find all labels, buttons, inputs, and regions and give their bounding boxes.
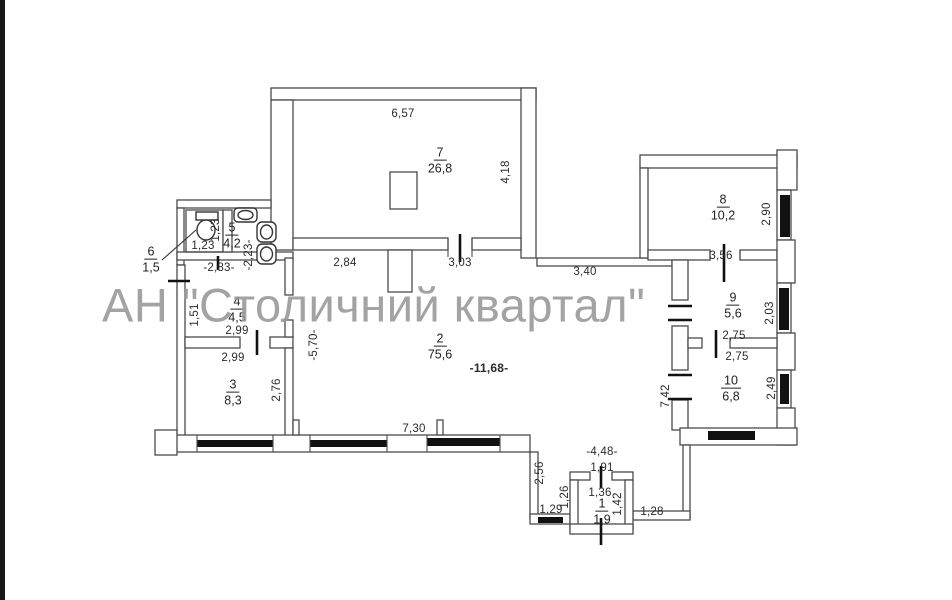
dim-7-42: 7,42 <box>660 384 672 407</box>
room-9-label: 9 5,6 <box>724 291 741 322</box>
room-3-number: 3 <box>227 378 240 393</box>
dim-1-29: 1,29 <box>539 504 562 516</box>
room-9-number: 9 <box>727 291 740 306</box>
dim-4-18: 4,18 <box>500 160 512 183</box>
room-7-area: 26,8 <box>428 161 452 176</box>
floor-plan-page: 7 26,8 8 10,2 2 75,6 4 4,5 3 8,3 5 4,2 6… <box>0 0 952 600</box>
room-8-label: 8 10,2 <box>711 193 735 224</box>
dim-2-84: 2,84 <box>333 257 356 269</box>
dim-2-75-a: 2,75 <box>722 330 745 342</box>
dim-1-91: 1,91 <box>590 462 613 474</box>
dim-2-49: 2,49 <box>766 376 778 399</box>
room-9-area: 5,6 <box>724 306 741 321</box>
dim-1-23-v: 1,23 <box>210 218 222 241</box>
room-5-label: 5 4,2 <box>223 221 240 252</box>
agency-watermark: АН "Столичний квартал" <box>102 277 645 332</box>
dim-1-42: 1,42 <box>612 492 624 515</box>
dim-6-57: 6,57 <box>391 108 414 120</box>
room-3-label: 3 8,3 <box>224 378 241 409</box>
dim-2-90: 2,90 <box>761 202 773 225</box>
room-7-number: 7 <box>434 146 447 161</box>
room-1-label: 1 1,9 <box>593 497 610 528</box>
dim-2-56: 2,56 <box>534 461 546 484</box>
dim-2-23: -2,23- <box>243 239 255 270</box>
room-2-area: 75,6 <box>428 347 452 362</box>
dim-1-23-h: 1,23 <box>191 240 214 252</box>
dim-3-03: 3,03 <box>448 257 471 269</box>
room-2-label: 2 75,6 <box>428 332 452 363</box>
room-6-number: 6 <box>145 245 158 260</box>
room-6-label: 6 1,5 <box>142 245 159 276</box>
room-6-area: 1,5 <box>142 260 159 275</box>
room-8-number: 8 <box>717 193 730 208</box>
dim-3-56: 3,56 <box>709 250 732 262</box>
room-3-area: 8,3 <box>224 393 241 408</box>
dim-11-68: -11,68- <box>470 361 509 375</box>
dim-1-36: 1,36 <box>588 487 611 499</box>
dim-3-40: 3,40 <box>573 266 596 278</box>
dim-2-03: 2,03 <box>764 301 776 324</box>
dim-4-48: -4,48- <box>586 446 617 458</box>
room-1-area: 1,9 <box>593 512 610 527</box>
dim-2-99-b: 2,99 <box>221 352 244 364</box>
dim-2-76: 2,76 <box>271 378 283 401</box>
room-5-area: 4,2 <box>223 236 240 251</box>
dim-5-70: -5,70- <box>308 329 320 360</box>
room-10-area: 6,8 <box>721 389 741 404</box>
room-10-number: 10 <box>721 374 741 389</box>
dim-2-75-b: 2,75 <box>725 351 748 363</box>
dim-1-28: 1,28 <box>640 506 663 518</box>
room-5-number: 5 <box>226 221 239 236</box>
dim-7-30: 7,30 <box>402 423 425 435</box>
dim-2-83: -2,83- <box>203 262 234 274</box>
room-7-label: 7 26,8 <box>428 146 452 177</box>
room-2-number: 2 <box>434 332 447 347</box>
room-10-label: 10 6,8 <box>721 374 741 405</box>
room-8-area: 10,2 <box>711 208 735 223</box>
